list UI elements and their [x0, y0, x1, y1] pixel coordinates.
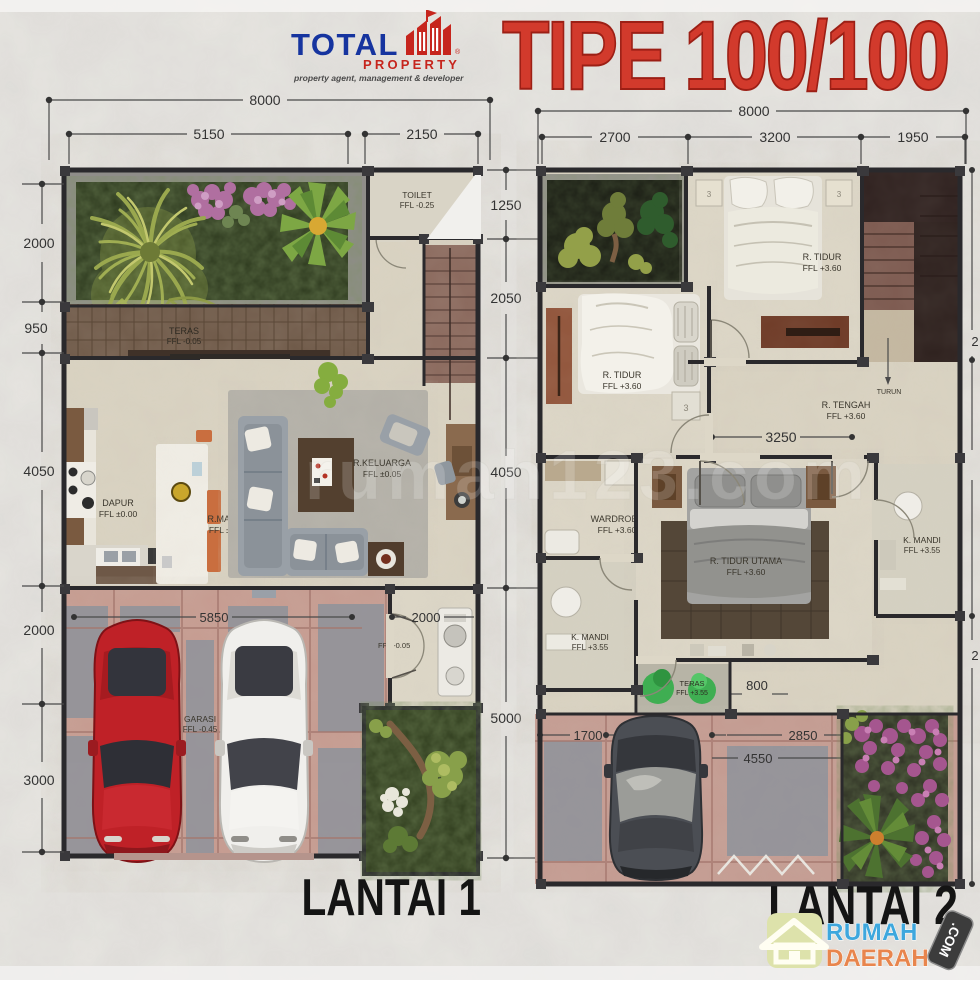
- svg-text:TURUN: TURUN: [877, 389, 902, 396]
- svg-text:4550: 4550: [744, 751, 773, 766]
- svg-text:TOILET: TOILET: [402, 190, 432, 200]
- svg-text:4050: 4050: [23, 463, 54, 479]
- svg-text:TIPE 100/100: TIPE 100/100: [502, 1, 948, 110]
- svg-text:950: 950: [24, 320, 48, 336]
- svg-text:FFL +3.60: FFL +3.60: [598, 525, 637, 535]
- svg-text:R. TENGAH: R. TENGAH: [822, 400, 871, 410]
- svg-text:R. TIDUR UTAMA: R. TIDUR UTAMA: [710, 556, 782, 566]
- svg-text:3: 3: [707, 190, 712, 199]
- svg-text:3: 3: [683, 403, 688, 413]
- svg-text:5150: 5150: [193, 126, 224, 142]
- svg-text:TERAS: TERAS: [679, 679, 704, 688]
- svg-text:property agent, management & d: property agent, management & developer: [293, 73, 464, 83]
- svg-text:FFL +3.60: FFL +3.60: [727, 567, 766, 577]
- svg-text:K. MANDI: K. MANDI: [903, 535, 941, 545]
- svg-text:FFL +3.55: FFL +3.55: [572, 643, 609, 652]
- svg-text:8000: 8000: [249, 92, 280, 108]
- svg-text:2000: 2000: [23, 622, 54, 638]
- svg-text:2850: 2850: [789, 728, 818, 743]
- svg-text:2050: 2050: [490, 290, 521, 306]
- svg-text:1950: 1950: [897, 129, 928, 145]
- svg-text:2000: 2000: [412, 610, 441, 625]
- svg-text:2700: 2700: [599, 129, 630, 145]
- svg-text:PROPERTY: PROPERTY: [363, 57, 460, 72]
- svg-text:3200: 3200: [759, 129, 790, 145]
- svg-text:DAPUR: DAPUR: [102, 498, 134, 508]
- svg-text:8000: 8000: [738, 103, 769, 119]
- svg-text:2: 2: [971, 648, 978, 663]
- svg-text:1250: 1250: [490, 197, 521, 213]
- svg-text:K. MANDI: K. MANDI: [571, 632, 609, 642]
- svg-text:GARASI: GARASI: [184, 714, 216, 724]
- svg-text:RUMAH: RUMAH: [826, 919, 918, 946]
- svg-text:800: 800: [746, 678, 768, 693]
- svg-text:®: ®: [455, 48, 461, 56]
- svg-text:2: 2: [971, 334, 978, 349]
- svg-text:DAERAH: DAERAH: [826, 945, 929, 972]
- svg-text:2150: 2150: [406, 126, 437, 142]
- svg-text:FFL +3.60: FFL +3.60: [603, 381, 642, 391]
- svg-text:rumah123.com: rumah123.com: [305, 436, 871, 514]
- svg-text:FFL -0.05: FFL -0.05: [167, 337, 202, 346]
- svg-text:R. TIDUR: R. TIDUR: [603, 370, 642, 380]
- svg-text:1700: 1700: [574, 728, 603, 743]
- svg-text:FFL ±0.00: FFL ±0.00: [99, 509, 138, 519]
- svg-text:FFL +3.60: FFL +3.60: [827, 411, 866, 421]
- svg-text:FFL +3.60: FFL +3.60: [803, 263, 842, 273]
- svg-text:3000: 3000: [23, 772, 54, 788]
- svg-text:LANTAI 1: LANTAI 1: [302, 868, 481, 926]
- svg-text:2000: 2000: [23, 235, 54, 251]
- svg-text:5000: 5000: [490, 710, 521, 726]
- svg-text:FFL -0.05: FFL -0.05: [378, 641, 410, 650]
- svg-text:5850: 5850: [200, 610, 229, 625]
- svg-text:FFL -0.25: FFL -0.25: [400, 201, 435, 210]
- svg-text:FFL +3.55: FFL +3.55: [676, 690, 708, 697]
- svg-text:R. TIDUR: R. TIDUR: [803, 252, 842, 262]
- svg-text:FFL -0.45: FFL -0.45: [183, 725, 218, 734]
- svg-text:3: 3: [837, 190, 842, 199]
- svg-text:TERAS: TERAS: [169, 326, 199, 336]
- svg-text:FFL +3.55: FFL +3.55: [904, 546, 941, 555]
